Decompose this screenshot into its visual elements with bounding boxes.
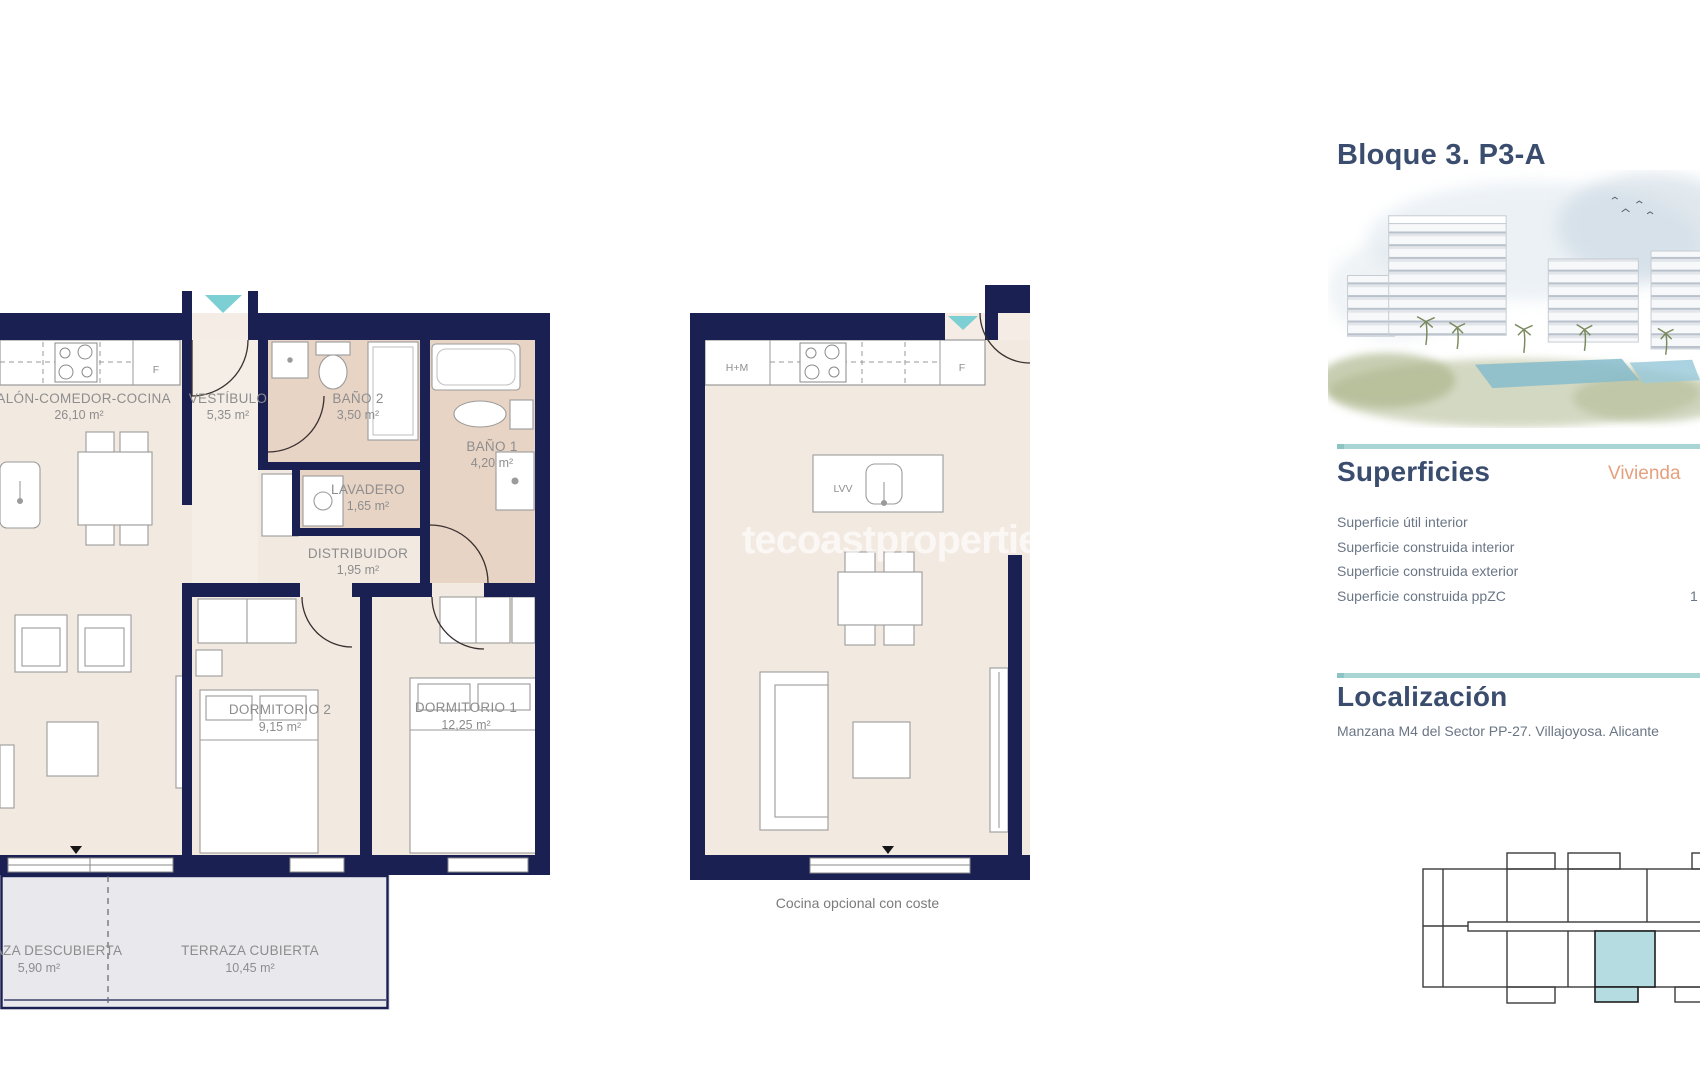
highlighted-unit (1595, 931, 1655, 1002)
room-label-salon: SALÓN-COMEDOR-COCINA (0, 391, 171, 406)
page-title: Bloque 3. P3-A (1337, 139, 1546, 172)
room-label-dormitorio1: DORMITORIO 1 (415, 700, 517, 715)
row-label: Superficie construida interior (1337, 539, 1514, 555)
room-label-dormitorio2: DORMITORIO 2 (229, 702, 331, 717)
superficies-table: Superficie útil interior Superficie cons… (1337, 514, 1700, 613)
table-row: Superficie construida interior (1337, 539, 1700, 564)
svg-text:5,35 m²: 5,35 m² (207, 408, 249, 422)
windows (810, 858, 970, 873)
fridge-label: F (959, 362, 965, 374)
coffee-table (853, 722, 910, 778)
fridge-label: F (153, 364, 159, 376)
localizacion-heading: Localización (1337, 681, 1507, 713)
room-label-vestibulo: VESTÍBULO (189, 391, 267, 406)
block-outline (1423, 853, 1700, 1003)
row-label: Superficie útil interior (1337, 514, 1468, 530)
dining-table (838, 572, 922, 625)
dining-table (78, 452, 152, 525)
toilet (316, 342, 350, 355)
stove-icon (800, 343, 846, 382)
svg-text:1,95 m²: 1,95 m² (337, 563, 379, 577)
superficies-heading: Superficies (1337, 456, 1490, 488)
svg-text:4,20 m²: 4,20 m² (471, 456, 513, 470)
section-divider (1337, 444, 1700, 449)
toilet (454, 401, 506, 427)
superficies-column-label: Vivienda (1608, 463, 1681, 485)
dishwasher-label: LVV (833, 483, 852, 495)
svg-text:5,90 m²: 5,90 m² (18, 961, 60, 975)
property-plan-sheet: { "header": { "title": "Bloque 3. P3-A" … (0, 0, 1700, 1080)
svg-text:3,50 m²: 3,50 m² (337, 408, 379, 422)
row-value: 1 (1690, 588, 1698, 604)
optional-kitchen-caption: Cocina opcional con coste (685, 895, 1030, 911)
room-label-lavadero: LAVADERO (331, 482, 405, 497)
floor-plan-left: SALÓN-COMEDOR-COCINA 26,10 m² VESTÍBULO … (0, 285, 550, 1012)
row-label: Superficie construida exterior (1337, 563, 1518, 579)
stove-icon (55, 343, 97, 382)
room-label-bano2: BAÑO 2 (332, 391, 383, 406)
svg-text:1,65 m²: 1,65 m² (347, 499, 389, 513)
section-divider (1337, 673, 1700, 678)
kitchen-counter (0, 340, 180, 385)
row-label: Superficie construida ppZC (1337, 588, 1506, 604)
table-row: Superficie construida exterior (1337, 563, 1700, 588)
svg-text:26,10 m²: 26,10 m² (54, 408, 103, 422)
entry-arrow-icon (205, 295, 242, 313)
room-label-distribuidor: DISTRIBUIDOR (308, 546, 408, 561)
table-row: Superficie construida ppZC 1 (1337, 588, 1700, 613)
table-row: Superficie útil interior (1337, 514, 1700, 539)
svg-text:10,45 m²: 10,45 m² (225, 961, 274, 975)
svg-text:9,15 m²: 9,15 m² (259, 720, 301, 734)
building-rendering (1328, 170, 1700, 428)
room-label-terraza-descubierta: TERRAZA DESCUBIERTA (0, 943, 122, 958)
floor-plan-optional-kitchen: H+M F LVV (685, 280, 1030, 880)
block-location-diagram (1408, 850, 1700, 1010)
room-label-bano1: BAÑO 1 (466, 439, 517, 454)
svg-text:12,25 m²: 12,25 m² (441, 718, 490, 732)
localizacion-text: Manzana M4 del Sector PP-27. Villajoyosa… (1337, 723, 1659, 739)
room-label-terraza-cubierta: TERRAZA CUBIERTA (181, 943, 319, 958)
ottoman (47, 722, 98, 776)
washer-label: H+M (726, 362, 748, 374)
